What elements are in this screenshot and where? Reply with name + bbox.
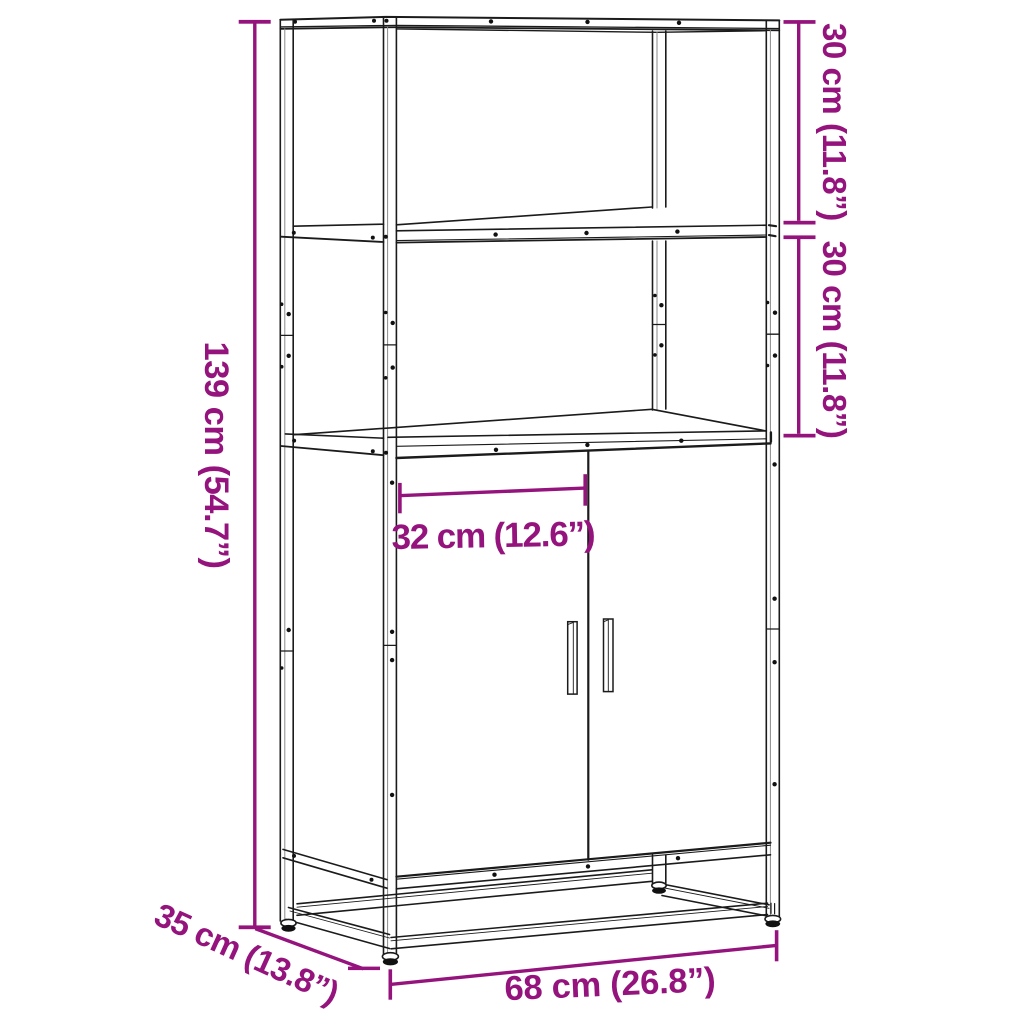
svg-text:32 cm (12.6”): 32 cm (12.6”) [391, 514, 595, 557]
svg-text:139 cm (54.7”): 139 cm (54.7”) [197, 342, 235, 569]
svg-text:30 cm (11.8”): 30 cm (11.8”) [816, 241, 853, 439]
svg-text:30 cm (11.8”): 30 cm (11.8”) [816, 23, 853, 221]
